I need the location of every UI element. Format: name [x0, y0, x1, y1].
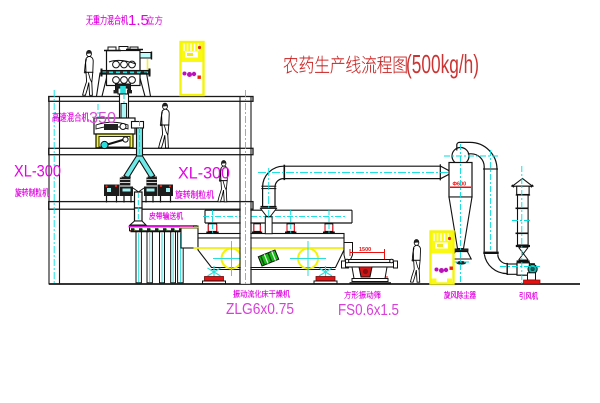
svg-text:XL-300: XL-300 — [14, 163, 61, 181]
svg-text:Φ600: Φ600 — [453, 182, 467, 188]
svg-text:FS0.6x1.5: FS0.6x1.5 — [338, 302, 399, 319]
svg-text:1.5: 1.5 — [128, 12, 149, 29]
svg-text:XL-300: XL-300 — [178, 165, 230, 183]
svg-text:(500kg/h): (500kg/h) — [406, 49, 479, 79]
svg-text:350: 350 — [89, 110, 116, 127]
svg-text:ZLG6x0.75: ZLG6x0.75 — [226, 301, 294, 318]
svg-text:1500: 1500 — [359, 247, 371, 253]
